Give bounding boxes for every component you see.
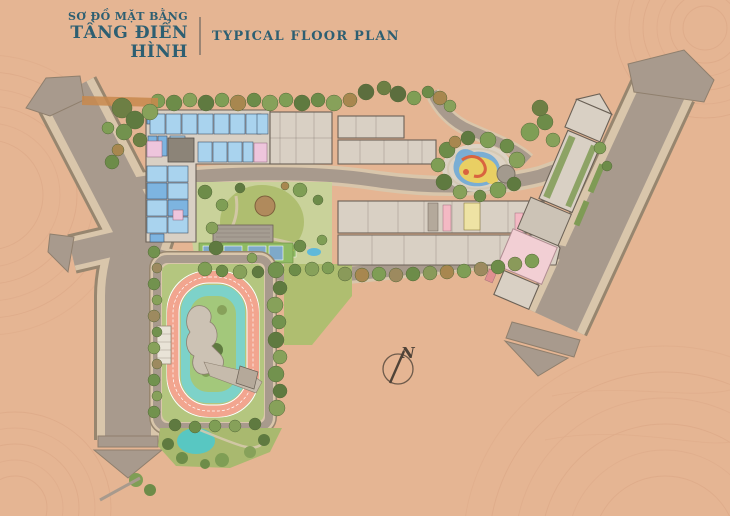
elevator-core xyxy=(168,138,194,162)
plan-title-vi-line2: TẦNG ĐIỂN HÌNH xyxy=(56,24,188,63)
plan-title-english: TYPICAL FLOOR PLAN xyxy=(212,29,400,44)
plan-title: SƠ ĐỒ MẶT BẰNG TẦNG ĐIỂN HÌNH TYPICAL FL… xyxy=(56,10,400,63)
plan-title-vi-line1: SƠ ĐỒ MẶT BẰNG xyxy=(56,10,188,24)
buildings-mid xyxy=(338,116,436,164)
road-end-arrow-west xyxy=(48,234,74,272)
unit-pink-a xyxy=(443,205,451,231)
road-end-arrow-south xyxy=(98,436,158,447)
garden-pond xyxy=(307,248,321,256)
site-plan-page: SƠ ĐỒ MẶT BẰNG TẦNG ĐIỂN HÌNH TYPICAL FL… xyxy=(0,0,730,516)
sand-pit xyxy=(255,196,275,216)
title-divider xyxy=(199,17,201,55)
running-track-park xyxy=(157,259,269,427)
compass-north-label: N xyxy=(400,344,416,362)
plan-title-vietnamese: SƠ ĐỒ MẶT BẰNG TẦNG ĐIỂN HÌNH xyxy=(56,10,188,63)
compass: N xyxy=(383,344,416,384)
unit-yellow xyxy=(464,203,480,230)
site-plan-map: N xyxy=(0,0,730,516)
road-end-arrow-south-tip xyxy=(94,450,162,478)
